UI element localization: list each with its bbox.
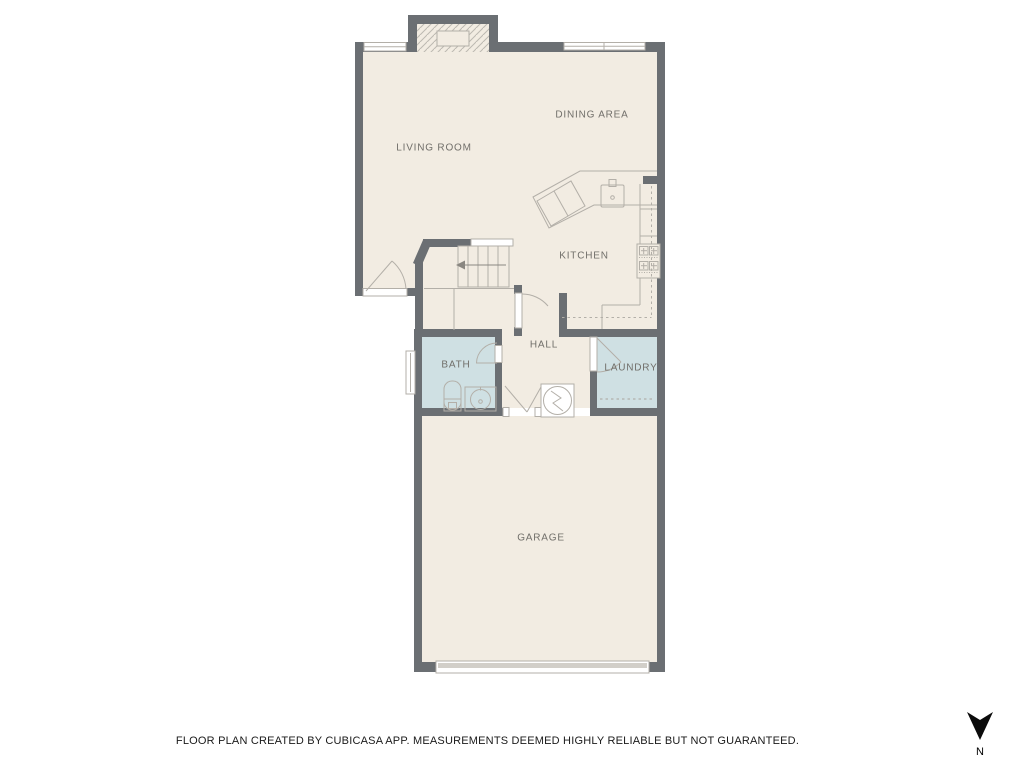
floor-plan-drawing <box>0 0 1024 768</box>
compass-label: N <box>965 746 995 758</box>
room-label-dining-area: DINING AREA <box>555 110 628 121</box>
room-label-living-room: LIVING ROOM <box>396 143 471 154</box>
north-arrow-icon <box>966 711 994 741</box>
floor-plan-page: LIVING ROOM DINING AREA KITCHEN HALL BAT… <box>0 0 1024 768</box>
room-label-garage: GARAGE <box>517 533 565 544</box>
fireplace <box>408 15 498 52</box>
water-heater-icon <box>541 384 574 417</box>
stove <box>637 244 660 278</box>
room-label-laundry: LAUNDRY <box>604 363 657 374</box>
garage-door <box>436 661 649 673</box>
room-label-bath: BATH <box>441 360 470 371</box>
disclaimer-text: FLOOR PLAN CREATED BY CUBICASA APP. MEAS… <box>0 735 975 747</box>
room-label-kitchen: KITCHEN <box>559 251 609 262</box>
compass: N <box>965 711 995 758</box>
room-label-hall: HALL <box>530 340 558 351</box>
